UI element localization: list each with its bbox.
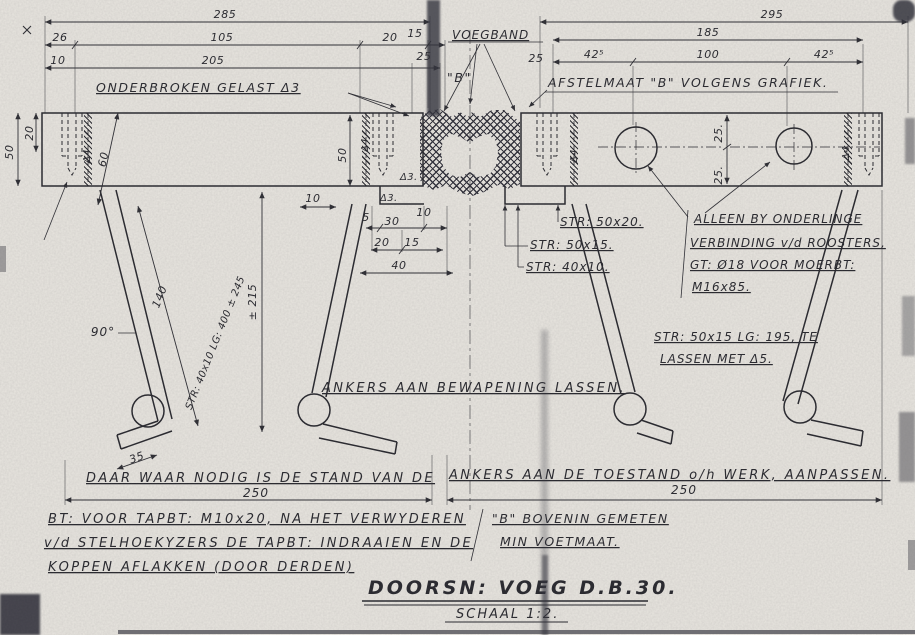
- bolt-holes: [598, 122, 880, 176]
- anchor-1: [100, 190, 172, 449]
- dim-90deg: 90°: [91, 325, 115, 339]
- note-bt-2: v/d STELHOEKYZERS DE TAPBT: INDRAAIEN EN…: [44, 536, 473, 551]
- dim-total-left: 285: [214, 8, 237, 21]
- dim-250-right: 250: [671, 483, 697, 497]
- note-str-lg-2: LASSEN MET Δ5.: [660, 352, 773, 366]
- scanned-drawing-sheet: 285 26 105 20 15 10 205 25 25 295 185 42…: [0, 0, 915, 635]
- tap-bolts: [62, 113, 879, 175]
- title-block: DOORSN: VOEG D.B.30. SCHAAL 1:2.: [368, 577, 679, 622]
- dim-step-30: 30: [384, 215, 399, 228]
- weld-delta4-c: Δ4: [569, 149, 580, 164]
- note-daar-1: DAAR WAAR NODIG IS DE STAND VAN DE: [86, 471, 435, 486]
- photocopy-smudge-right1: [905, 118, 915, 164]
- dim-20: 20: [382, 31, 397, 44]
- photocopy-smudge-right2: [902, 296, 915, 356]
- photocopy-smudge-corner: [893, 0, 915, 22]
- note-afstelmaat: AFSTELMAAT "B" VOLGENS GRAFIEK.: [547, 75, 828, 90]
- note-ankers-lassen: ANKERS AAN BEWAPENING LASSEN.: [321, 381, 626, 396]
- dim-42-5-a: 42⁵: [584, 48, 604, 61]
- note-alleen-1: ALLEEN BY ONDERLINGE: [693, 212, 862, 226]
- note-str-50x20: STR: 50x20.: [560, 215, 644, 229]
- dim-35: 35: [127, 449, 146, 466]
- weld-delta3-a: Δ3.: [399, 172, 418, 183]
- dim-140: 140: [149, 284, 170, 310]
- dim-20-left: 20: [23, 125, 36, 140]
- dim-step-15: 15: [404, 236, 419, 249]
- dim-50-mid: 50: [336, 147, 349, 162]
- anchor-4: [783, 190, 863, 446]
- weld-centerlines: [88, 113, 848, 186]
- note-bt-3: KOPPEN AFLAKKEN (DOOR DERDEN): [48, 560, 354, 575]
- dim-15: 15: [407, 27, 422, 40]
- weld-symbol-texts: Δ3. Δ3. Δ4 Δ4 Δ4 Δ4: [82, 138, 852, 204]
- tap-bolt-1: [62, 113, 82, 175]
- note-b-meet-1: "B" BOVENIN GEMETEN: [492, 511, 669, 526]
- photocopy-smudge-top: [427, 0, 440, 116]
- note-voegband: VOEGBAND: [452, 28, 529, 42]
- weld-delta4-a: Δ4: [82, 149, 93, 164]
- dim-hole-25a: 25.: [712, 123, 725, 142]
- note-str-40x10: STR: 40x10.: [526, 260, 610, 274]
- photocopy-fold-streak-dark: [542, 555, 548, 635]
- dim-26: 26: [52, 31, 67, 44]
- tap-bolt-2: [373, 113, 393, 175]
- note-bt-1: BT: VOOR TAPBT: M10x20, NA HET VERWYDERE…: [48, 512, 466, 527]
- weld-delta4-b: Δ4: [360, 138, 371, 153]
- dim-pm215: ± 215: [246, 284, 259, 321]
- note-texts: ONDERBROKEN GELAST Δ3 VOEGBAND "B" AFSTE…: [44, 28, 890, 575]
- note-alleen-4: M16x85.: [692, 280, 751, 294]
- note-str-50x15: STR: 50x15.: [530, 238, 614, 252]
- note-anchor-spec: STR: 40x10 LG: 400 ± 245: [184, 275, 248, 412]
- photocopy-smudge-bottom-left: [0, 594, 40, 635]
- dim-step-20: 20: [374, 236, 389, 249]
- note-str-lg-1: STR: 50x15 LG: 195, TE: [654, 330, 818, 344]
- right-plate: [505, 113, 882, 204]
- dim-105: 105: [211, 31, 234, 44]
- note-onderbroken: ONDERBROKEN GELAST Δ3: [96, 80, 301, 95]
- drawing-title: DOORSN: VOEG D.B.30.: [368, 577, 679, 599]
- dim-100: 100: [697, 48, 720, 61]
- dim-step-10: 10: [305, 192, 320, 205]
- anchors: [100, 190, 863, 454]
- note-alleen-2: VERBINDING v/d ROOSTERS,: [690, 236, 886, 250]
- tap-bolt-4: [859, 113, 879, 175]
- dim-step-5: 5: [362, 211, 370, 224]
- dim-total-right: 295: [761, 8, 784, 21]
- dim-step-10b: 10: [416, 206, 431, 219]
- weld-delta3-b: Δ3.: [379, 193, 398, 204]
- dim-42-5-b: 42⁵: [814, 48, 834, 61]
- dim-step-40: 40: [391, 259, 406, 272]
- dim-50-left: 50: [3, 144, 16, 159]
- weld-delta4-d: Δ4: [841, 146, 852, 161]
- photocopy-smudge-right3: [899, 412, 915, 482]
- dim-60: 60: [96, 150, 112, 168]
- note-daar-2: ANKERS AAN DE TOESTAND o/h WERK, AANPASS…: [448, 468, 890, 483]
- dim-hole-25b: 25.: [712, 165, 725, 184]
- dim-10: 10: [50, 54, 65, 67]
- photocopy-smudge-right4: [908, 540, 915, 570]
- note-b-meet-2: MIN VOETMAAT.: [500, 534, 620, 549]
- drawing-canvas: 285 26 105 20 15 10 205 25 25 295 185 42…: [0, 0, 915, 635]
- note-alleen-3: GT: Ø18 VOOR MOERBT:: [690, 258, 855, 272]
- note-b-quote: "B": [447, 70, 472, 85]
- tap-bolt-3: [537, 113, 557, 175]
- photocopy-bottom-edge: [118, 630, 915, 634]
- dim-25-mid: 25: [528, 52, 543, 65]
- dim-205: 205: [202, 54, 225, 67]
- dim-185: 185: [697, 26, 720, 39]
- dim-250-left: 250: [243, 486, 269, 500]
- photocopy-smudge-left: [0, 246, 6, 272]
